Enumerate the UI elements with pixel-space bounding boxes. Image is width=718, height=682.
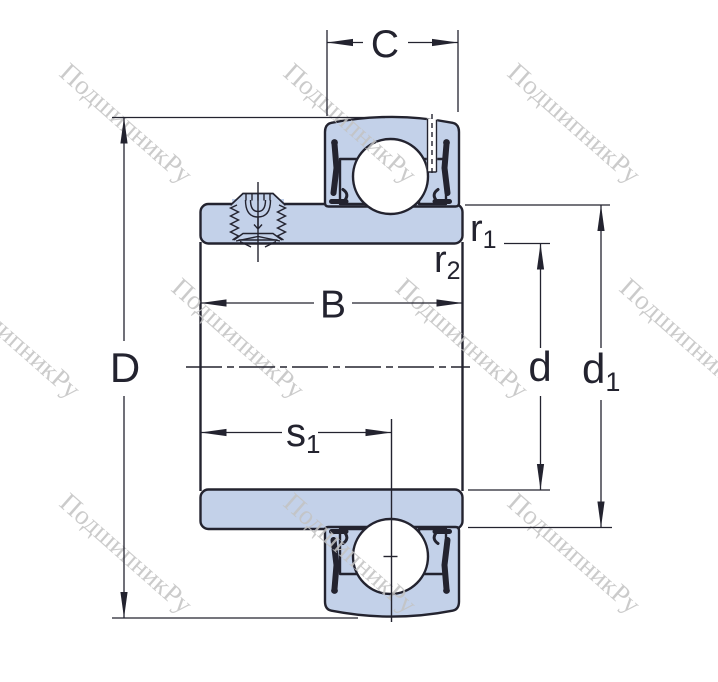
dim-label-d1-sub: 1 — [605, 367, 620, 397]
dim-label-C: C — [371, 23, 399, 66]
arrowhead-down-icon — [120, 592, 127, 618]
arrowhead-down-icon — [537, 464, 544, 490]
watermark-text: ПодшипникРу — [502, 57, 647, 190]
arrowhead-right-icon — [432, 39, 458, 46]
arrowhead-right-icon — [437, 299, 463, 306]
watermark-text: ПодшипникРу — [54, 57, 199, 190]
watermark-text: ПодшипникРу — [0, 272, 87, 405]
dim-label-r2: r2 — [434, 239, 461, 285]
arrowhead-right-icon — [366, 429, 392, 436]
dim-label-d1: d1 — [582, 345, 620, 397]
dim-label-r1-sub: 1 — [483, 226, 497, 254]
watermark-text: ПодшипникРу — [614, 272, 718, 405]
arrowhead-down-icon — [597, 502, 604, 528]
dim-label-s1-base: s — [286, 411, 306, 455]
seal-body — [445, 540, 448, 589]
watermark-text: ПодшипникРу — [166, 272, 311, 405]
dim-label-r1: r1 — [470, 208, 497, 254]
dim-label-B: B — [320, 284, 346, 327]
arrowhead-up-icon — [597, 205, 604, 231]
dim-label-s1-sub: 1 — [306, 429, 320, 459]
dim-label-r1-base: r — [470, 208, 483, 250]
bearing-cross-section-drawing: ПодшипникРу ПодшипникРу ПодшипникРу Подш… — [0, 0, 718, 682]
dim-label-D: D — [110, 344, 140, 391]
arrowhead-left-icon — [327, 39, 353, 46]
seal-body — [334, 144, 337, 193]
seal-body — [445, 144, 448, 193]
dim-label-d: d — [528, 343, 551, 390]
dim-label-d1-base: d — [582, 345, 605, 392]
dim-label-s1: s1 — [286, 411, 320, 459]
watermark-text: ПодшипникРу — [502, 487, 647, 620]
dimension-s1: s1 — [201, 411, 392, 459]
arrowhead-up-icon — [537, 244, 544, 270]
outer-ring-slot — [427, 114, 437, 177]
bearing-drawing-canvas: ПодшипникРу ПодшипникРу ПодшипникРу Подш… — [0, 0, 718, 682]
arrowhead-left-icon — [201, 429, 227, 436]
dim-label-r2-base: r — [434, 239, 447, 281]
inner-ring-sleeve-top — [201, 204, 463, 244]
dim-label-r2-sub: 2 — [447, 257, 461, 285]
